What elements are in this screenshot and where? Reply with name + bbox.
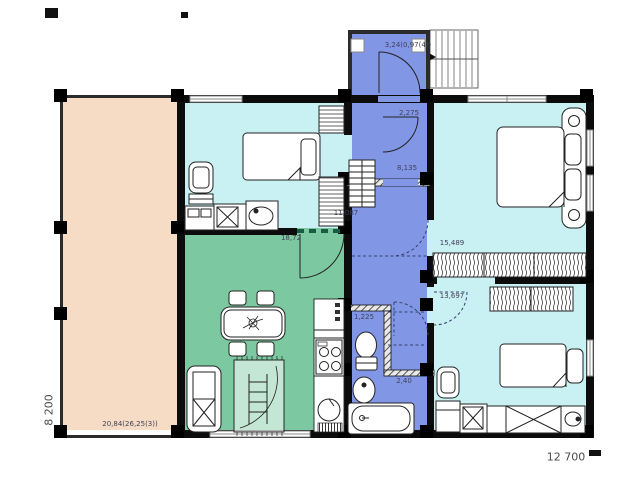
bedroom1-area-label: 15,489	[440, 239, 465, 247]
rug-ladder	[234, 356, 284, 436]
washbasin	[353, 377, 375, 403]
terrace-walls	[60, 95, 180, 438]
hall-fixtures	[348, 160, 414, 434]
wardrobe	[319, 177, 344, 226]
wardrobe	[319, 106, 344, 133]
double-bed	[497, 127, 564, 207]
overall-width-dimension: 12 700	[547, 451, 586, 464]
pillow	[565, 169, 581, 200]
hall-width-label: 2,275	[399, 109, 419, 117]
dining-chair	[257, 342, 274, 356]
cabinet	[436, 401, 460, 432]
bathtub	[348, 403, 414, 434]
living-room-furniture	[187, 291, 344, 436]
single-bed	[500, 344, 566, 387]
pillow	[565, 134, 581, 165]
porch-post	[351, 39, 364, 52]
wc-width-label: 1,225	[354, 313, 374, 321]
porch-structure	[348, 30, 430, 96]
floorplan-drawing	[0, 0, 642, 502]
living-area-label: 18,72	[281, 234, 301, 242]
bedroom2-furniture	[436, 287, 585, 433]
dining-chair	[229, 342, 246, 356]
kitchen-strip	[314, 299, 344, 432]
terrace-area-label: 20,84(26,25(3))	[102, 420, 157, 428]
porch-area-label: 3,24(0,97(4))	[385, 41, 432, 49]
pillow	[567, 349, 583, 383]
bath-width-label: 2,40	[396, 377, 412, 385]
pillow	[301, 139, 316, 175]
dimension-tick	[589, 450, 601, 456]
dining-chair	[229, 291, 246, 305]
wardrobe-row	[433, 253, 586, 277]
floor-plan: 3,24(0,97(4)) 2,275 8,135 11,087 18,72 1…	[0, 0, 642, 502]
bedroom1-furniture	[433, 108, 586, 277]
toilet	[356, 332, 378, 370]
kids-area-label: 11,087	[334, 209, 359, 217]
kids-room-furniture	[185, 106, 344, 230]
overall-depth-dimension: 8 200	[43, 394, 56, 426]
attic-ladder	[349, 160, 375, 207]
hall-area-label: 8,135	[397, 164, 417, 172]
dining-chair	[257, 291, 274, 305]
counter	[487, 406, 561, 433]
bedroom2-area-label: 13,697	[440, 292, 465, 300]
entrance-deck	[427, 30, 478, 88]
vent-grille	[318, 423, 342, 432]
